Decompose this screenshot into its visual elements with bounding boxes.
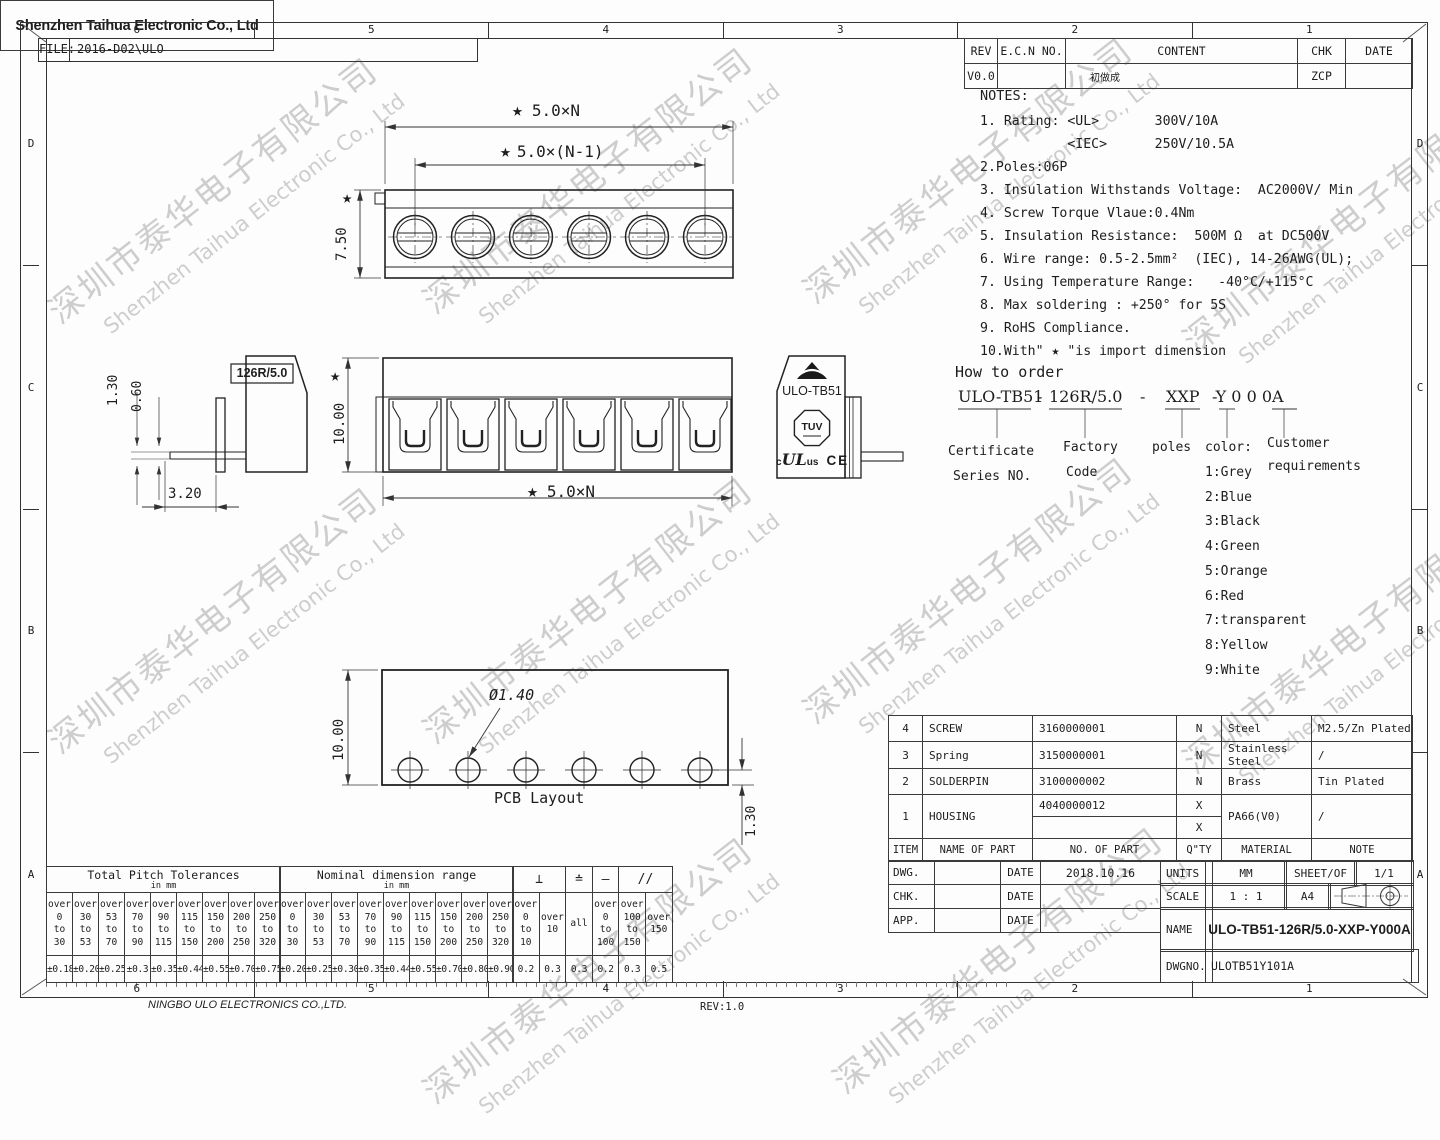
- nominal-value-8: ±0.90: [488, 956, 514, 983]
- star-icon: ★: [512, 100, 523, 121]
- housing-note: /: [1312, 795, 1413, 839]
- zone-col-2: 4: [489, 22, 724, 38]
- zone-col-3: 3: [724, 981, 959, 997]
- parts-cell-3: N: [1177, 769, 1222, 795]
- pitch-range-5: over 115 to 150: [177, 893, 203, 956]
- color-option-8: 9:White: [1205, 659, 1307, 684]
- parts-cell-5: /: [1312, 742, 1413, 769]
- note-line-0: 1. Rating: <UL> 300V/10A: [980, 110, 1353, 133]
- date-value: [1346, 64, 1413, 89]
- pitch-value-row: ±0.18±0.20±0.25±0.3±0.35±0.44±0.55±0.70±…: [47, 956, 281, 983]
- rev-header-0: REV: [965, 39, 998, 64]
- geo-value-1: 0.3: [539, 956, 566, 983]
- notes-list: 1. Rating: <UL> 300V/10A <IEC> 250V/10.5…: [980, 110, 1353, 363]
- pitch-range-row: over 0 to 30over 30 to 53over 53 to 70ov…: [47, 893, 281, 956]
- geo-value-5: 0.5: [645, 956, 672, 983]
- zone-col-3: 3: [724, 22, 959, 38]
- revision-table: REVE.C.N NO.CONTENTCHKDATE V0.0 初做成 ZCP: [964, 38, 1413, 89]
- nominal-range-6: over 150 to 200: [436, 893, 462, 956]
- ul-mark: UL: [782, 450, 807, 469]
- dim-top-overall: ★5.0×N: [512, 100, 580, 121]
- zone-row-0: D: [1412, 22, 1428, 266]
- nominal-value-6: ±0.70: [436, 956, 462, 983]
- ul-us-mark: us: [807, 457, 819, 468]
- nominal-value-row: ±0.20±0.25±0.30±0.35±0.44±0.55±0.70±0.80…: [280, 956, 514, 983]
- rev-value: V0.0: [965, 64, 998, 89]
- chk-row: CHK. DATE: [889, 885, 1161, 909]
- chk-label: CHK.: [889, 885, 935, 909]
- content-value: 初做成: [1066, 64, 1298, 89]
- paper-size: A4: [1284, 883, 1331, 910]
- parts-cell-1: SCREW: [923, 716, 1033, 742]
- parts-cell-3: N: [1177, 742, 1222, 769]
- revision-header-row: REVE.C.N NO.CONTENTCHKDATE: [965, 39, 1413, 64]
- note-line-3: 3. Insulation Withstands Voltage: AC2000…: [980, 179, 1353, 202]
- pitch-value-6: ±0.55: [203, 956, 229, 983]
- zone-row-2: B: [23, 510, 39, 754]
- parts-cell-2: 3150000001: [1033, 742, 1177, 769]
- footer-company: NINGBO ULO ELECTRONICS CO.,LTD.: [148, 999, 347, 1011]
- nominal-range-5: over 115 to 150: [410, 893, 436, 956]
- order-code-dash1: -: [1037, 387, 1042, 406]
- notes-title: NOTES:: [980, 88, 1029, 104]
- order-label-series-no: Series NO.: [953, 469, 1031, 484]
- parts-cell-1: Spring: [923, 742, 1033, 769]
- housing-qty-1: X: [1177, 795, 1222, 817]
- color-options: 1:Grey2:Blue3:Black4:Green5:Orange6:Red7…: [1205, 461, 1307, 683]
- chk-value: ZCP: [1298, 64, 1346, 89]
- nominal-value-4: ±0.44: [384, 956, 410, 983]
- pitch-range-7: over 200 to 250: [229, 893, 255, 956]
- zone-row-2: B: [1412, 510, 1428, 754]
- rev-header-1: E.C.N NO.: [998, 39, 1066, 64]
- pitch-range-6: over 150 to 200: [203, 893, 229, 956]
- order-code-suffix: -Y 0 0 0A: [1212, 387, 1284, 406]
- parts-header-1: NAME OF PART: [923, 839, 1033, 862]
- note-line-10: 10.With" ★ "is import dimension: [980, 340, 1353, 363]
- pitch-range-4: over 90 to 115: [151, 893, 177, 956]
- nominal-tolerance-table: Nominal dimension rangein mm over 0 to 3…: [279, 866, 514, 983]
- dim-front-height: 10.00: [332, 390, 348, 458]
- order-heading: How to order: [955, 363, 1063, 381]
- housing-material: PA66(V0): [1222, 795, 1312, 839]
- nominal-value-7: ±0.80: [462, 956, 488, 983]
- rev-header-2: CONTENT: [1066, 39, 1298, 64]
- note-line-7: 7. Using Temperature Range: -40°C/+115°C: [980, 271, 1353, 294]
- nominal-range-1: over 30 to 53: [306, 893, 332, 956]
- dwg-name: [935, 861, 1001, 885]
- nominal-range-7: over 200 to 250: [462, 893, 488, 956]
- nominal-unit: in mm: [280, 882, 513, 891]
- dim-front-overall-value: 5.0×N: [547, 482, 595, 501]
- color-option-7: 8:Yellow: [1205, 634, 1307, 659]
- nominal-range-4: over 90 to 115: [384, 893, 410, 956]
- chk-name: [935, 885, 1001, 909]
- dwg-date-label: DATE: [1001, 861, 1041, 885]
- color-option-0: 1:Grey: [1205, 461, 1307, 486]
- pitch-range-8: over 250 to 320: [255, 893, 281, 956]
- order-label-customer: Customer: [1267, 436, 1330, 451]
- geo-value-3: 0.2: [592, 956, 619, 983]
- app-row: APP. DATE: [889, 909, 1161, 933]
- rev-header-3: CHK: [1298, 39, 1346, 64]
- note-line-6: 6. Wire range: 0.5-2.5mm² (IEC), 14-26AW…: [980, 248, 1353, 271]
- color-option-2: 3:Black: [1205, 510, 1307, 535]
- nominal-range-8: over 250 to 320: [488, 893, 514, 956]
- parts-header-3: Q"TY: [1177, 839, 1222, 862]
- dwgno-value: ULOTB51Y101A: [1205, 949, 1419, 983]
- nominal-range-row: over 0 to 30over 30 to 53over 53 to 70ov…: [280, 893, 514, 956]
- dim-pcb-height: 10.00: [331, 700, 347, 780]
- dim-front-overall: ★5.0×N: [527, 481, 595, 502]
- parts-row-screw: 4SCREW3160000001NSteelM2.5/Zn Plated: [889, 716, 1413, 742]
- parts-row-solderpin: 2SOLDERPIN3100000002NBrassTin Plated: [889, 769, 1413, 795]
- geo-range-5: over 150: [645, 893, 672, 956]
- dwg-row: DWG. DATE 2018.10.16: [889, 861, 1161, 885]
- side-profile-label: 126R/5.0: [232, 366, 292, 380]
- note-line-4: 4. Screw Torque Vlaue:0.4Nm: [980, 202, 1353, 225]
- app-date-label: DATE: [1001, 909, 1041, 933]
- zone-row-1: C: [1412, 266, 1428, 510]
- geo-value-row: 0.20.30.30.20.30.5: [513, 956, 673, 983]
- nominal-value-1: ±0.25: [306, 956, 332, 983]
- nominal-value-3: ±0.35: [358, 956, 384, 983]
- parts-header-2: NO. OF PART: [1033, 839, 1177, 862]
- order-label-poles: poles: [1152, 440, 1191, 455]
- parts-header-4: MATERIAL: [1222, 839, 1312, 862]
- housing-qty-2: X: [1177, 817, 1222, 839]
- zone-rows-left: DCBA: [23, 22, 39, 996]
- note-line-8: 8. Max soldering : +250° for 5S: [980, 294, 1353, 317]
- nominal-range-0: over 0 to 30: [280, 893, 306, 956]
- pitch-value-2: ±0.25: [99, 956, 125, 983]
- pitch-value-3: ±0.3: [125, 956, 151, 983]
- dim-top-pitch: ★5.0×(N-1): [500, 141, 604, 162]
- file-box: FILE: 2016-D02\ULO: [38, 38, 478, 62]
- color-option-6: 7:transparent: [1205, 609, 1307, 634]
- app-date-value: [1041, 909, 1161, 933]
- pitch-range-2: over 53 to 70: [99, 893, 125, 956]
- dim-top-overall-value: 5.0×N: [532, 101, 580, 120]
- pitch-tolerance-table: Total Pitch Tolerancesin mm over 0 to 30…: [46, 866, 281, 983]
- order-code-factory: 126R/5.0: [1049, 387, 1122, 406]
- zone-col-2: 4: [489, 981, 724, 997]
- note-line-5: 5. Insulation Resistance: 500M Ω at DC50…: [980, 225, 1353, 248]
- parts-row-spring: 3Spring3150000001NStainless Steel/: [889, 742, 1413, 769]
- order-label-factory: Factory: [1063, 440, 1118, 455]
- geo-range-1: over 10: [539, 893, 566, 956]
- straightness-symbol: —: [592, 867, 619, 893]
- pitch-value-1: ±0.20: [73, 956, 99, 983]
- dim-top-pitch-value: 5.0×(N-1): [517, 142, 604, 161]
- color-option-1: 2:Blue: [1205, 486, 1307, 511]
- symmetry-symbol: ≐: [566, 867, 593, 893]
- zone-col-1: 5: [255, 22, 490, 38]
- note-line-1: <IEC> 250V/10.5A: [980, 133, 1353, 156]
- scale-value: 1 : 1: [1205, 883, 1287, 910]
- tuv-mark: TUV: [801, 421, 823, 433]
- pitch-title-cell: Total Pitch Tolerancesin mm: [47, 867, 281, 893]
- zone-row-1: C: [23, 266, 39, 510]
- zone-col-4: 2: [958, 981, 1193, 997]
- app-label: APP.: [889, 909, 935, 933]
- zone-col-4: 2: [958, 22, 1193, 38]
- zone-col-0: 6: [20, 981, 255, 997]
- note-line-2: 2.Poles:06P: [980, 156, 1353, 179]
- nominal-value-0: ±0.20: [280, 956, 306, 983]
- drawing-name: ULO-TB51-126R/5.0-XXP-Y000A: [1205, 907, 1414, 952]
- color-option-4: 5:Orange: [1205, 560, 1307, 585]
- geometric-tolerance-table: ⊥ ≐ — // over 0 to 10over 10allover 0 to…: [512, 866, 673, 983]
- color-option-3: 4:Green: [1205, 535, 1307, 560]
- geo-range-row: over 0 to 10over 10allover 0 to 100over …: [513, 893, 673, 956]
- order-code-poles: XXP: [1166, 387, 1200, 406]
- star-icon: ★: [342, 188, 352, 208]
- pitch-value-5: ±0.44: [177, 956, 203, 983]
- zone-col-1: 5: [255, 981, 490, 997]
- nominal-value-5: ±0.55: [410, 956, 436, 983]
- zone-col-5: 1: [1193, 22, 1427, 38]
- order-code-dash2: -: [1140, 387, 1145, 406]
- star-icon: ★: [330, 366, 340, 386]
- pitch-value-8: ±0.75: [255, 956, 281, 983]
- housing-part-no-2: [1033, 817, 1177, 839]
- app-name: [935, 909, 1001, 933]
- geo-symbol-row: ⊥ ≐ — //: [513, 867, 673, 893]
- chk-date-label: DATE: [1001, 885, 1041, 909]
- pcb-layout-caption: PCB Layout: [494, 789, 584, 807]
- zone-columns-bottom: 654321: [20, 981, 1426, 997]
- pitch-range-1: over 30 to 53: [73, 893, 99, 956]
- parts-cell-1: SOLDERPIN: [923, 769, 1033, 795]
- zone-row-3: A: [23, 753, 39, 996]
- note-line-9: 9. RoHS Compliance.: [980, 317, 1353, 340]
- parts-row-housing: 1 HOUSING 4040000012 X PA66(V0) /: [889, 795, 1413, 817]
- nominal-range-3: over 70 to 90: [358, 893, 384, 956]
- chk-date-value: [1041, 885, 1161, 909]
- perpendicularity-symbol: ⊥: [513, 867, 566, 893]
- housing-item: 1: [889, 795, 923, 839]
- dim-side-b: 0.60: [130, 368, 145, 424]
- parts-cell-0: 3: [889, 742, 923, 769]
- geo-value-0: 0.2: [513, 956, 540, 983]
- housing-part-no-1: 4040000012: [1033, 795, 1177, 817]
- zone-columns-top: 654321: [20, 22, 1426, 38]
- parts-cell-0: 4: [889, 716, 923, 742]
- dim-pcb-offset: 1.30: [744, 793, 759, 849]
- parts-table: 4SCREW3160000001NSteelM2.5/Zn Plated 3Sp…: [888, 715, 1413, 862]
- pitch-value-0: ±0.18: [47, 956, 73, 983]
- dim-side-a: 1.30: [106, 362, 121, 418]
- nominal-title-row: Nominal dimension rangein mm: [280, 867, 514, 893]
- order-label-code: Code: [1066, 465, 1097, 480]
- order-label-color: color:: [1205, 440, 1252, 455]
- revision-data-row: V0.0 初做成 ZCP: [965, 64, 1413, 89]
- zone-row-0: D: [23, 22, 39, 266]
- parts-cell-5: Tin Plated: [1312, 769, 1413, 795]
- color-option-5: 6:Red: [1205, 585, 1307, 610]
- parts-cell-2: 3160000001: [1033, 716, 1177, 742]
- ce-mark: CE: [826, 453, 849, 468]
- parts-cell-4: Steel: [1222, 716, 1312, 742]
- dwg-date-value: 2018.10.16: [1041, 861, 1161, 885]
- geo-range-3: over 0 to 100: [592, 893, 619, 956]
- parts-cell-4: Brass: [1222, 769, 1312, 795]
- parallelism-symbol: //: [619, 867, 672, 893]
- parts-cell-3: N: [1177, 716, 1222, 742]
- zone-col-0: 6: [20, 22, 255, 38]
- geo-range-4: over 100 to 150: [619, 893, 646, 956]
- certification-marks: cULusCE: [776, 450, 849, 469]
- file-label: FILE:: [39, 39, 70, 61]
- projection-symbol-cell: [1328, 883, 1414, 910]
- approval-table: DWG. DATE 2018.10.16 CHK. DATE APP. DATE: [888, 860, 1161, 933]
- parts-cell-2: 3100000002: [1033, 769, 1177, 795]
- parts-header-5: NOTE: [1312, 839, 1413, 862]
- ecn-value: [998, 64, 1066, 89]
- geo-value-4: 0.3: [619, 956, 646, 983]
- star-icon: ★: [500, 141, 511, 162]
- parts-cell-5: M2.5/Zn Plated: [1312, 716, 1413, 742]
- nominal-range-2: over 53 to 70: [332, 893, 358, 956]
- parts-header-row: ITEMNAME OF PARTNO. OF PARTQ"TYMATERIALN…: [889, 839, 1413, 862]
- footer-rev: REV:1.0: [700, 1001, 744, 1013]
- star-icon: ★: [527, 481, 538, 502]
- pitch-title-row: Total Pitch Tolerancesin mm: [47, 867, 281, 893]
- order-code-series: ULO-TB51: [958, 387, 1043, 406]
- geo-range-2: all: [566, 893, 593, 956]
- rev-header-4: DATE: [1346, 39, 1413, 64]
- geo-value-2: 0.3: [566, 956, 593, 983]
- housing-name: HOUSING: [923, 795, 1033, 839]
- parts-header-0: ITEM: [889, 839, 923, 862]
- parts-cell-0: 2: [889, 769, 923, 795]
- file-value: 2016-D02\ULO: [70, 39, 164, 61]
- dim-pcb-hole: Ø1.40: [489, 686, 534, 704]
- zone-col-5: 1: [1193, 981, 1427, 997]
- pitch-range-3: over 70 to 90: [125, 893, 151, 956]
- dwg-label: DWG.: [889, 861, 935, 885]
- pitch-range-0: over 0 to 30: [47, 893, 73, 956]
- brand-label: ULO-TB51: [781, 384, 843, 398]
- nominal-title-cell: Nominal dimension rangein mm: [280, 867, 514, 893]
- parts-cell-4: Stainless Steel: [1222, 742, 1312, 769]
- geo-range-0: over 0 to 10: [513, 893, 540, 956]
- pitch-value-4: ±0.35: [151, 956, 177, 983]
- zone-rows-right: DCBA: [1412, 22, 1428, 996]
- pitch-value-7: ±0.70: [229, 956, 255, 983]
- order-label-certificate: Certificate: [948, 444, 1034, 459]
- pitch-unit: in mm: [47, 882, 280, 891]
- dim-top-height: 7.50: [334, 212, 350, 276]
- nominal-value-2: ±0.30: [332, 956, 358, 983]
- dim-side-c: 3.20: [168, 486, 202, 502]
